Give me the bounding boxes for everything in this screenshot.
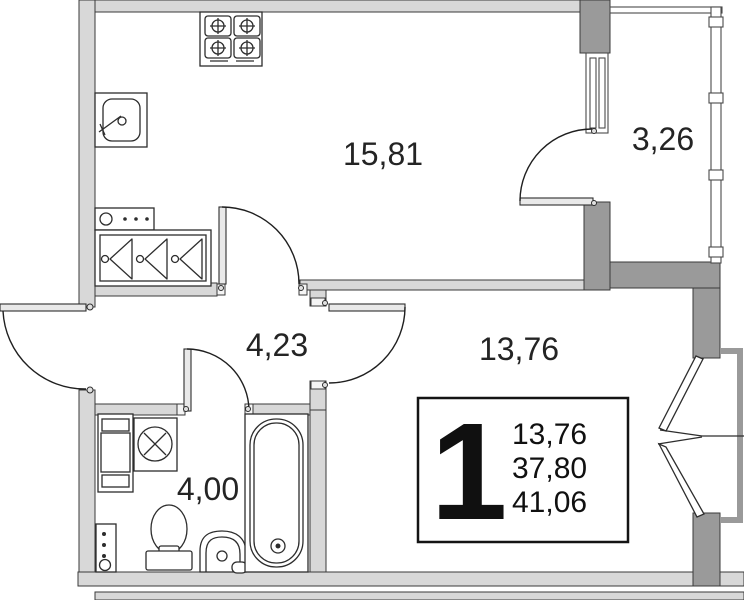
kitchen-door — [219, 207, 304, 291]
room-area-label: 13,76 — [479, 331, 559, 367]
bathtub-icon — [245, 414, 308, 572]
apartment-area-value: 37,80 — [512, 452, 587, 485]
hallway-area-label: 4,23 — [246, 327, 308, 363]
info-box: 1 13,76 37,80 41,06 — [418, 395, 628, 549]
balcony-window — [586, 53, 608, 133]
total-area-value: 41,06 — [512, 486, 587, 519]
utility-riser-icon — [96, 524, 116, 572]
room-count: 1 — [431, 395, 508, 549]
room-door — [323, 301, 406, 388]
bathroom-area-label: 4,00 — [177, 471, 239, 507]
bay-window — [658, 351, 744, 520]
toilet-icon — [146, 505, 192, 570]
balcony-area-label: 3,26 — [632, 121, 694, 157]
entrance-door — [0, 304, 93, 393]
balcony-door — [520, 129, 597, 206]
bathroom-door — [184, 349, 251, 412]
kitchen-sink-icon — [95, 93, 147, 147]
bathroom-sink-icon — [200, 531, 247, 573]
kitchen-living-area-label: 15,81 — [343, 136, 423, 172]
stove-icon — [200, 12, 262, 66]
floor-plan-svg: 15,81 3,26 4,23 13,76 4,00 1 13,76 37,80… — [0, 0, 744, 600]
floor-plan: 15,81 3,26 4,23 13,76 4,00 1 13,76 37,80… — [0, 0, 744, 600]
bathroom-cabinet-icon — [98, 414, 133, 492]
wardrobe-icon — [95, 230, 211, 286]
washing-machine-icon — [134, 418, 177, 471]
living-area-value: 13,76 — [512, 418, 587, 451]
shoe-shelf-icon — [95, 208, 154, 230]
